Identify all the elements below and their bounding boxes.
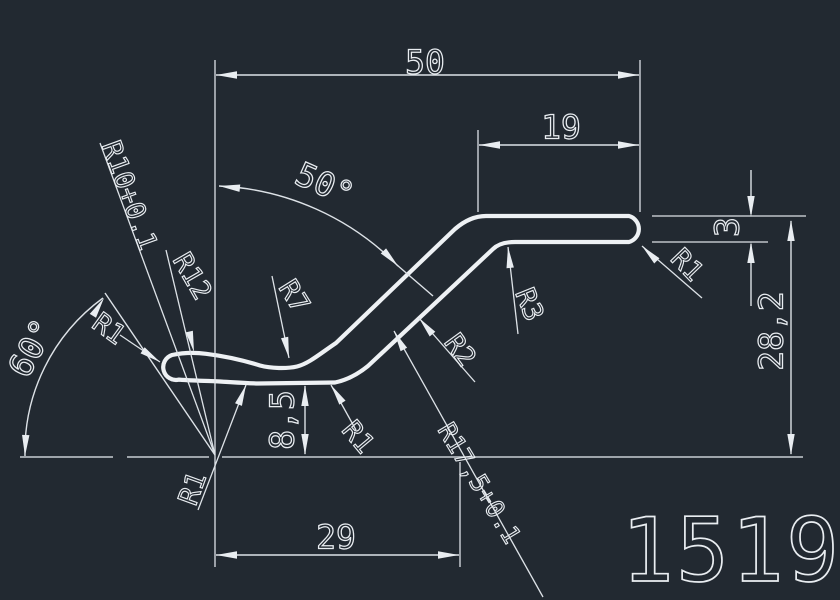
dim-groove-depth-label: 8,5 [263, 390, 302, 450]
leader-r3[interactable]: R3 [504, 247, 549, 334]
cad-drawing[interactable]: 50 19 29 8,5 28,2 3 [0, 0, 840, 600]
arrowhead [281, 337, 293, 359]
dim-base-width-label: 29 [316, 518, 356, 557]
radius-r17-5-label: R17,5+0.1 [432, 418, 527, 549]
dim-thickness[interactable]: 3 [708, 170, 755, 306]
arrowhead [301, 434, 308, 455]
radius-r2-label: R2 [438, 328, 482, 373]
dim-overall-height[interactable]: 28,2 [752, 220, 795, 455]
leader-r2[interactable]: R2 [416, 316, 482, 382]
arrowhead [787, 434, 794, 455]
arrowhead [618, 141, 639, 148]
angle-ray [105, 293, 215, 455]
dim-thickness-label: 3 [708, 217, 747, 237]
dim-flange-width[interactable]: 19 [479, 108, 639, 149]
radius-r1-label: R1 [664, 243, 709, 288]
extension-lines[interactable] [215, 60, 806, 567]
arrowhead [618, 71, 639, 78]
dim-overall-width[interactable]: 50 [216, 43, 639, 82]
arrowhead [216, 551, 237, 558]
dim-main-angle[interactable]: 50° [219, 154, 433, 296]
leader-r7[interactable]: R7 [272, 274, 316, 358]
radius-r1-label: R1 [335, 415, 380, 460]
dim-groove-depth[interactable]: 8,5 [263, 385, 309, 455]
dim-main-angle-label: 50° [290, 154, 360, 214]
part-number: 1519 [621, 499, 840, 600]
dim-flange-width-label: 19 [541, 108, 581, 147]
arrowhead [639, 243, 659, 263]
radius-r12-label: R12 [166, 248, 217, 306]
arrowhead [219, 182, 241, 192]
arrowhead [381, 248, 401, 268]
leader-r1-end[interactable]: R1 [639, 243, 709, 298]
arrowhead [235, 384, 249, 406]
arrowhead [216, 71, 237, 78]
arrowhead [504, 247, 514, 269]
leader-r1-apex[interactable]: R1 [173, 384, 250, 510]
radius-r3-label: R3 [508, 284, 549, 326]
radius-r1-label: R1 [173, 468, 213, 509]
arrowhead [479, 141, 500, 148]
arrowhead [328, 383, 346, 405]
radius-r7-label: R7 [272, 274, 316, 318]
dim-base-width[interactable]: 29 [216, 518, 459, 559]
radius-r10-label: R10+0.1 [95, 137, 163, 255]
leader-r1-valley[interactable]: R1 [328, 383, 380, 460]
dim-overall-height-label: 28,2 [752, 291, 791, 370]
arrowhead [747, 242, 754, 263]
leader-r17-5[interactable]: R17,5+0.1 [391, 329, 543, 597]
arrowhead [747, 196, 754, 217]
arrowhead [787, 220, 794, 241]
dim-overall-width-label: 50 [405, 43, 445, 82]
profile-outline[interactable] [163, 216, 639, 384]
arrowhead [438, 551, 459, 558]
profile-path[interactable] [163, 216, 639, 384]
arrowhead [301, 385, 308, 406]
dim-left-angle-label: 60° [0, 313, 62, 384]
cad-canvas[interactable]: 50 19 29 8,5 28,2 3 [0, 0, 840, 600]
leader-r1-tip[interactable]: R1 [86, 307, 162, 365]
arrowhead [21, 435, 29, 456]
